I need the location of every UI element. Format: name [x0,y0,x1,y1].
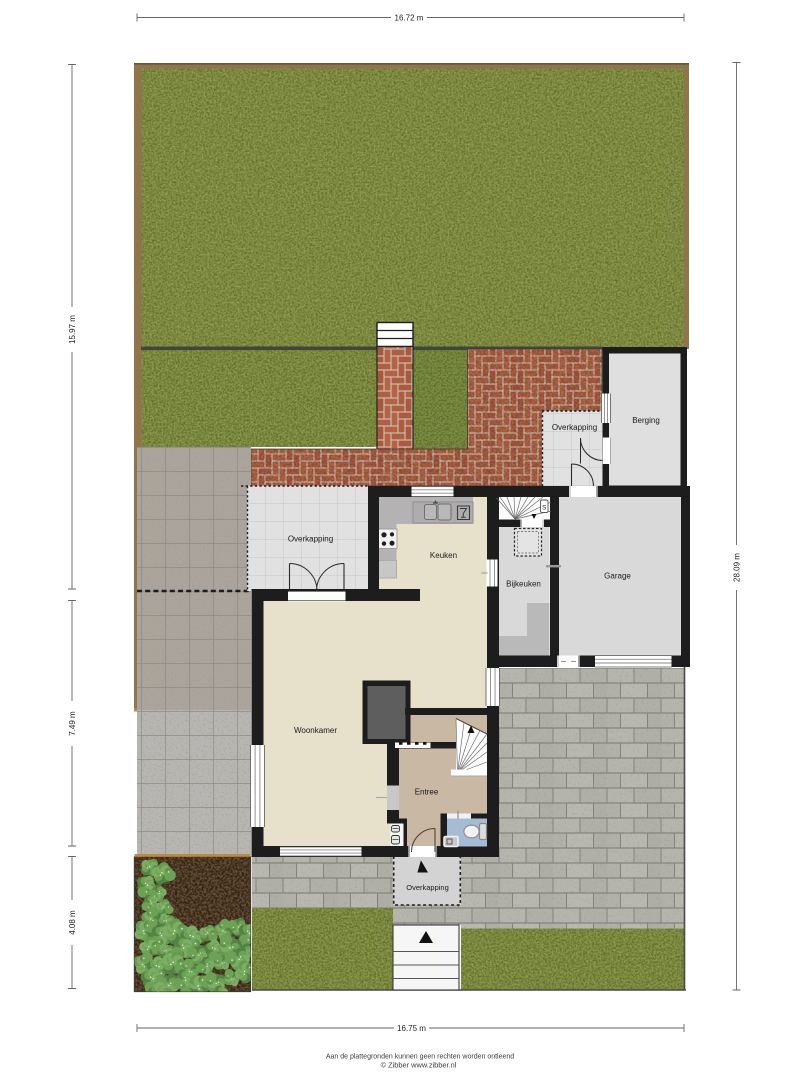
svg-text:28.09 m: 28.09 m [733,553,742,582]
svg-text:Overkapping: Overkapping [288,535,333,544]
svg-text:Bijkeuken: Bijkeuken [506,580,541,589]
svg-text:© Zibber www.zibber.nl: © Zibber www.zibber.nl [381,1061,457,1070]
svg-text:15.97 m: 15.97 m [68,315,77,344]
svg-text:Keuken: Keuken [430,551,457,560]
svg-text:S: S [542,505,546,512]
svg-text:Overkapping: Overkapping [406,883,449,892]
svg-text:Berging: Berging [632,416,660,425]
svg-text:Entree: Entree [415,788,439,797]
svg-text:Garage: Garage [604,572,631,581]
svg-text:7.49 m: 7.49 m [68,711,77,736]
svg-text:Overkapping: Overkapping [552,423,597,432]
svg-text:Aan de plattegronden kunnen ge: Aan de plattegronden kunnen geen rechten… [326,1054,514,1061]
svg-text:4.08 m: 4.08 m [68,910,77,935]
svg-text:Woonkamer: Woonkamer [294,726,337,735]
svg-text:16.75 m: 16.75 m [397,1024,426,1033]
svg-text:16.72 m: 16.72 m [395,14,424,23]
